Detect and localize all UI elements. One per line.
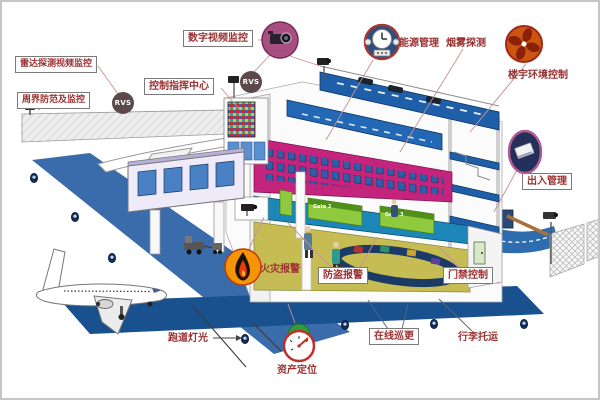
- access-card-reader-icon: [506, 129, 544, 175]
- label-energy-management: 能源管理: [399, 37, 439, 50]
- label-runway-lighting: 跑道灯光: [168, 332, 208, 345]
- digital-video-camera-icon: [259, 19, 301, 61]
- airport-security-system-diagram: Gate 2 Gate 3: [0, 0, 600, 400]
- label-building-environment-control: 楼宇环境控制: [508, 69, 568, 82]
- label-digital-video-surveillance: 数字视频监控: [183, 30, 253, 47]
- fire-flame-icon: [222, 246, 264, 288]
- label-burglar-alarm: 防盗报警: [318, 267, 368, 284]
- runway-light-arrow: [213, 335, 242, 341]
- energy-clock-icon: [361, 22, 403, 64]
- label-door-access-control: 门禁控制: [443, 267, 493, 284]
- rvs-badge: RVS: [240, 71, 262, 93]
- label-online-patrol: 在线巡更: [369, 328, 419, 345]
- rooftop-camera-icon: [228, 76, 239, 98]
- label-baggage-check: 行李托运: [458, 331, 498, 344]
- label-perimeter-protection: 周界防范及监控: [17, 92, 90, 109]
- label-fire-alarm: 火灾报警: [260, 263, 300, 276]
- label-access-management: 出入管理: [522, 173, 572, 190]
- security-fence: [550, 219, 600, 277]
- label-smoke-detection: 烟雾探测: [446, 37, 486, 50]
- label-radar-video-surveillance: 雷达探测视频监控: [15, 56, 97, 73]
- asset-gauge-icon: [278, 322, 320, 366]
- ventilation-fan-icon: [503, 23, 545, 65]
- label-control-command-center: 控制指挥中心: [144, 78, 214, 95]
- rvs-badge: RVS: [112, 92, 134, 114]
- wall-camera-icon: [235, 197, 268, 220]
- gate-2-label: Gate 2: [313, 204, 332, 210]
